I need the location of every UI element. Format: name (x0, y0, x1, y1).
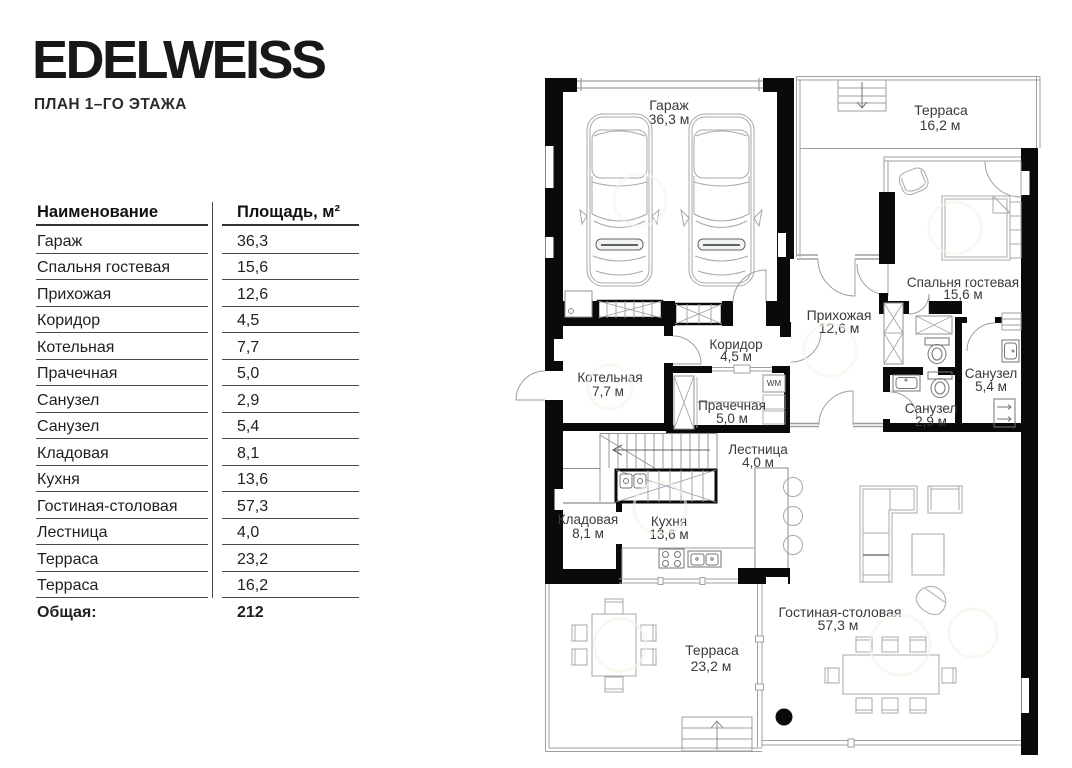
svg-text:23,2 м: 23,2 м (691, 658, 732, 674)
svg-text:Терраса: Терраса (685, 642, 739, 658)
svg-text:7,7 м: 7,7 м (592, 384, 624, 399)
svg-text:15,6 м: 15,6 м (943, 287, 982, 302)
svg-text:57,3 м: 57,3 м (818, 617, 859, 633)
svg-text:12,6 м: 12,6 м (819, 320, 860, 336)
svg-text:8,1 м: 8,1 м (572, 526, 604, 541)
svg-text:16,2 м: 16,2 м (920, 117, 961, 133)
svg-text:36,3 м: 36,3 м (649, 111, 690, 127)
svg-text:5,0 м: 5,0 м (716, 411, 748, 426)
svg-text:5,4 м: 5,4 м (975, 379, 1007, 394)
svg-text:2,9 м: 2,9 м (915, 414, 947, 429)
svg-text:Кладовая: Кладовая (558, 512, 618, 527)
svg-text:Терраса: Терраса (914, 102, 968, 118)
svg-text:WM: WM (767, 379, 782, 388)
svg-text:4,5 м: 4,5 м (720, 349, 752, 364)
